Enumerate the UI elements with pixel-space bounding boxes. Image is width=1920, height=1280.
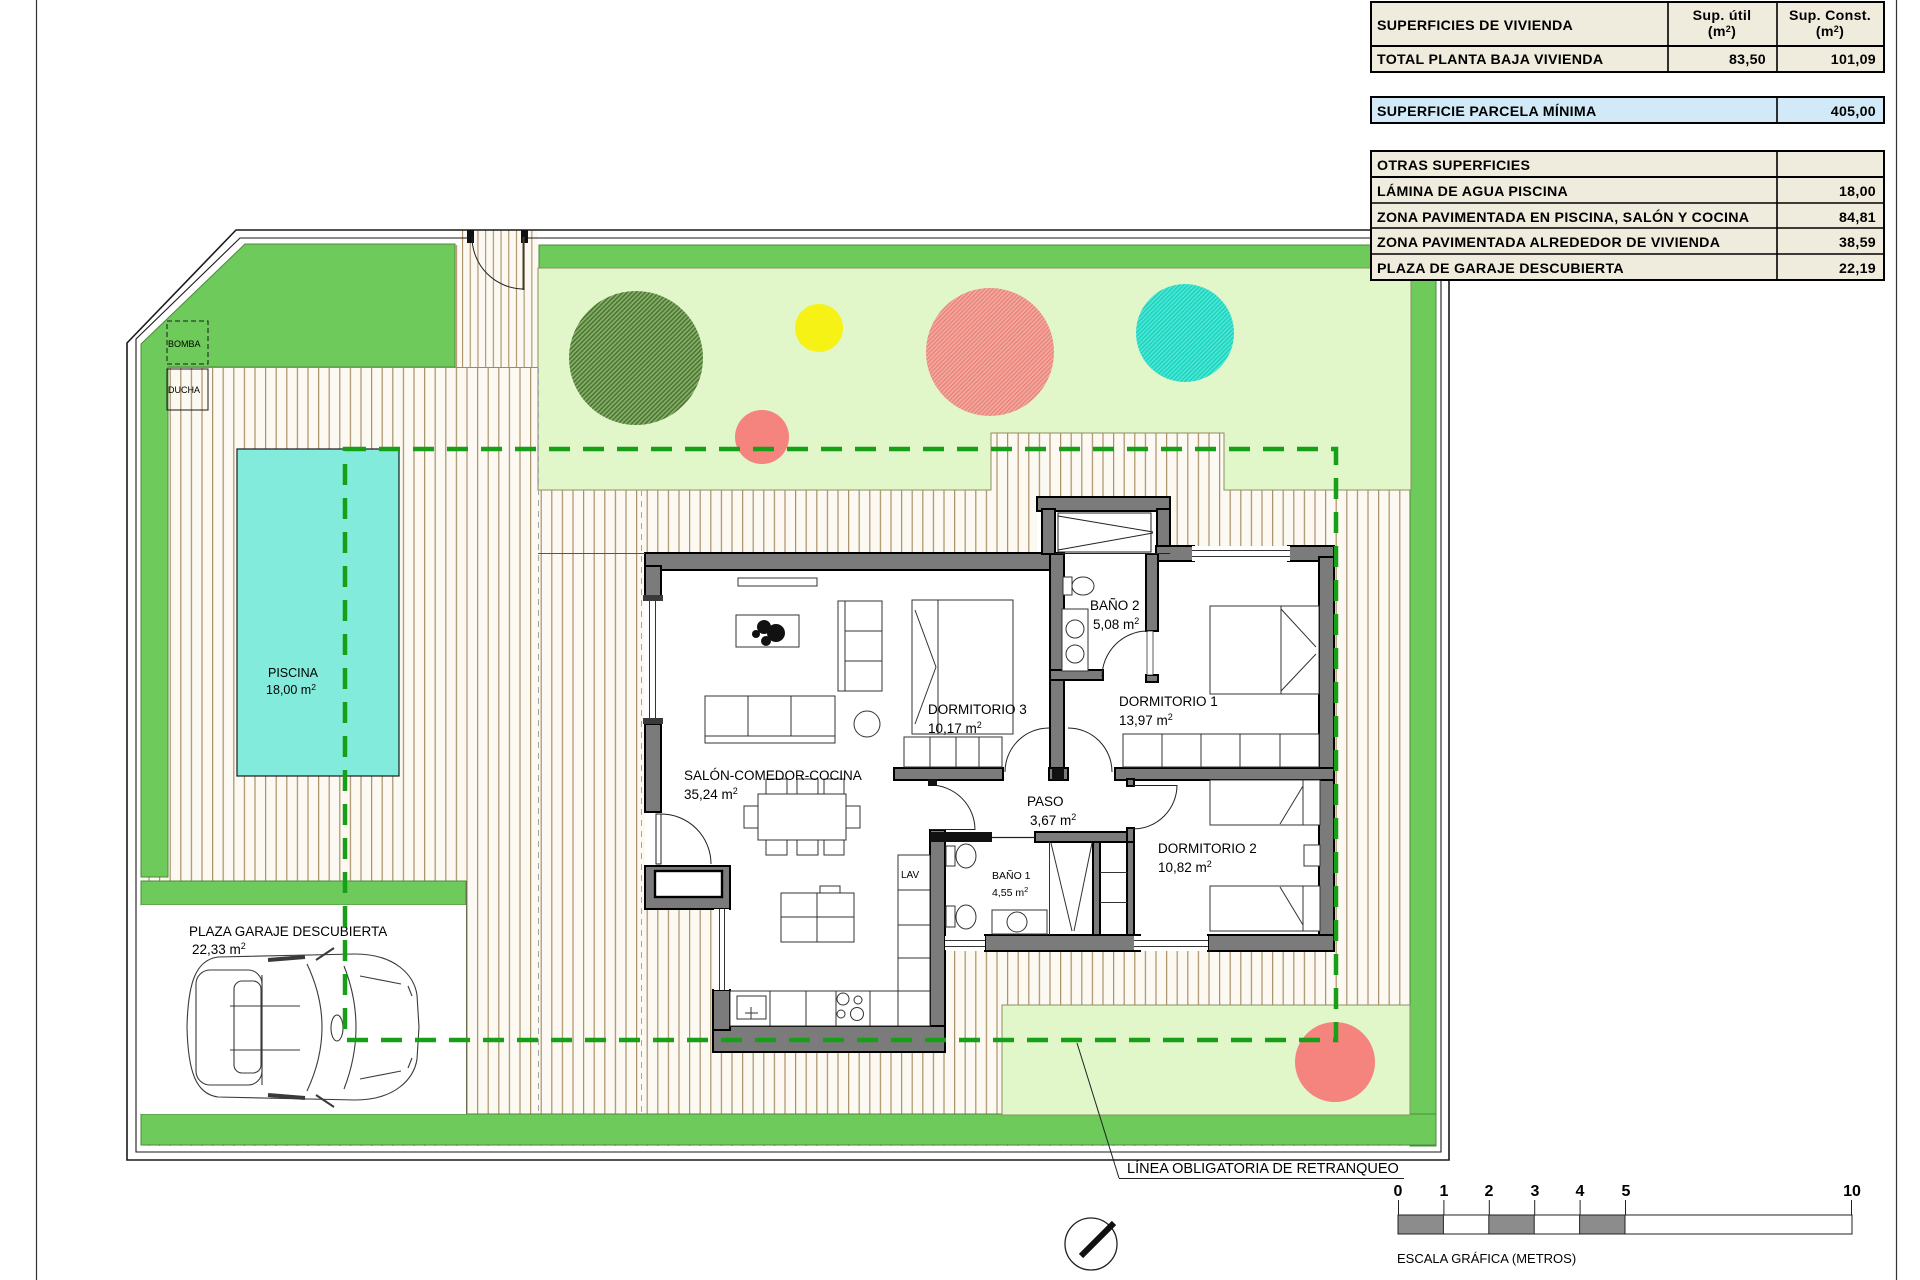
svg-text:38,59: 38,59: [1839, 235, 1876, 251]
svg-text:PASO: PASO: [1027, 794, 1064, 809]
svg-text:2: 2: [1485, 1183, 1494, 1200]
svg-text:10: 10: [1843, 1183, 1861, 1200]
svg-text:ZONA PAVIMENTADA EN PISCINA, S: ZONA PAVIMENTADA EN PISCINA, SALÓN Y COC…: [1377, 208, 1749, 226]
svg-text:13,97 m2: 13,97 m2: [1119, 712, 1173, 728]
svg-text:(m2): (m2): [1708, 24, 1736, 40]
svg-text:DORMITORIO 1: DORMITORIO 1: [1119, 694, 1218, 709]
svg-text:DUCHA: DUCHA: [168, 385, 200, 395]
svg-text:84,81: 84,81: [1839, 210, 1876, 226]
svg-text:4: 4: [1576, 1183, 1585, 1200]
svg-text:OTRAS SUPERFICIES: OTRAS SUPERFICIES: [1377, 158, 1530, 174]
svg-text:BAÑO 1: BAÑO 1: [992, 869, 1031, 882]
svg-text:35,24 m2: 35,24 m2: [684, 786, 738, 802]
svg-text:DORMITORIO 3: DORMITORIO 3: [928, 702, 1027, 717]
svg-text:SALÓN-COMEDOR-COCINA: SALÓN-COMEDOR-COCINA: [684, 768, 862, 783]
svg-text:22,33 m2: 22,33 m2: [192, 941, 246, 957]
svg-text:4,55 m2: 4,55 m2: [992, 885, 1028, 899]
svg-text:BOMBA: BOMBA: [168, 339, 201, 349]
svg-text:ESCALA GRÁFICA (METROS): ESCALA GRÁFICA (METROS): [1397, 1251, 1576, 1266]
svg-text:3,67 m2: 3,67 m2: [1030, 812, 1076, 828]
svg-text:1: 1: [1440, 1183, 1449, 1200]
svg-text:BAÑO 2: BAÑO 2: [1090, 598, 1140, 613]
svg-text:ZONA PAVIMENTADA ALREDEDOR DE: ZONA PAVIMENTADA ALREDEDOR DE VIVIENDA: [1377, 235, 1720, 251]
svg-text:SUPERFICIES DE VIVIENDA: SUPERFICIES DE VIVIENDA: [1377, 18, 1573, 34]
svg-text:PISCINA: PISCINA: [268, 666, 319, 680]
svg-text:PLAZA GARAJE DESCUBIERTA: PLAZA GARAJE DESCUBIERTA: [189, 924, 387, 939]
svg-text:DORMITORIO 2: DORMITORIO 2: [1158, 841, 1257, 856]
svg-text:405,00: 405,00: [1831, 104, 1876, 120]
svg-text:83,50: 83,50: [1729, 52, 1766, 68]
svg-text:22,19: 22,19: [1839, 261, 1876, 277]
svg-text:10,17 m2: 10,17 m2: [928, 720, 982, 736]
svg-text:18,00 m2: 18,00 m2: [266, 682, 316, 697]
svg-text:5: 5: [1622, 1183, 1631, 1200]
svg-text:(m2): (m2): [1816, 24, 1844, 40]
svg-text:5,08 m2: 5,08 m2: [1093, 616, 1139, 632]
svg-text:Sup. útil: Sup. útil: [1693, 8, 1752, 24]
svg-text:101,09: 101,09: [1831, 52, 1876, 68]
svg-text:0: 0: [1394, 1183, 1403, 1200]
svg-text:PLAZA DE GARAJE DESCUBIERTA: PLAZA DE GARAJE DESCUBIERTA: [1377, 261, 1624, 277]
svg-text:LÍNEA OBLIGATORIA DE RETRANQUE: LÍNEA OBLIGATORIA DE RETRANQUEO: [1127, 1160, 1399, 1177]
svg-text:LÁMINA DE AGUA PISCINA: LÁMINA DE AGUA PISCINA: [1377, 183, 1568, 200]
svg-text:18,00: 18,00: [1839, 184, 1876, 200]
svg-text:3: 3: [1531, 1183, 1540, 1200]
svg-text:10,82 m2: 10,82 m2: [1158, 859, 1212, 875]
svg-text:SUPERFICIE PARCELA MÍNIMA: SUPERFICIE PARCELA MÍNIMA: [1377, 103, 1597, 120]
svg-text:TOTAL PLANTA BAJA VIVIENDA: TOTAL PLANTA BAJA VIVIENDA: [1377, 52, 1603, 68]
svg-text:Sup. Const.: Sup. Const.: [1789, 8, 1871, 24]
svg-text:LAV: LAV: [901, 870, 919, 881]
